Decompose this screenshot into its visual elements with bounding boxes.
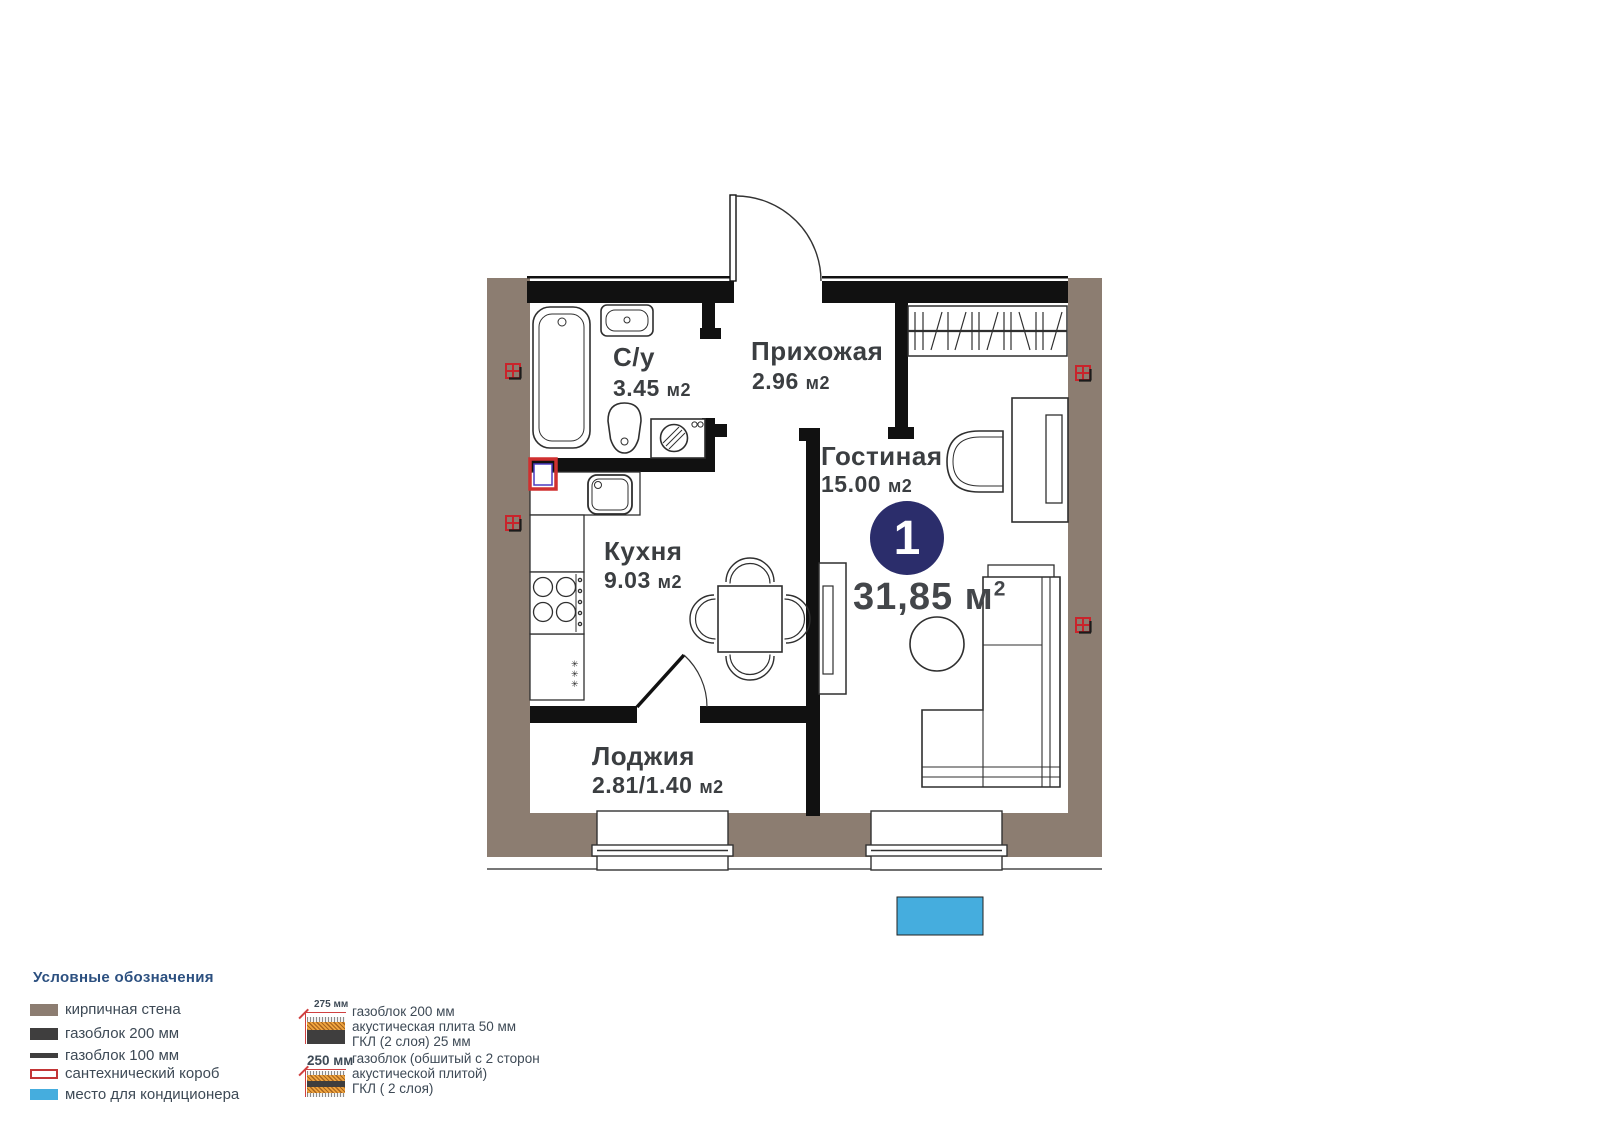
room-area-unit: м2: [667, 380, 691, 400]
tv-stand-icon: [819, 563, 846, 694]
wall-section-line: ГКЛ ( 2 слоя): [352, 1081, 540, 1096]
wall-section-line: газоблок 200 мм: [352, 1004, 516, 1019]
room-area-unit: м2: [888, 476, 912, 496]
room-count-badge: 1: [870, 501, 944, 575]
room-label-hallway: Прихожая: [751, 336, 883, 367]
wardrobe-icon: [908, 306, 1067, 356]
wall-section-swatch-icon: [307, 1071, 345, 1097]
dining-table-icon: [690, 558, 810, 680]
room-area-value: 15.00: [821, 471, 881, 497]
total-area: 31,85 м2: [853, 576, 1006, 619]
brick-swatch-icon: [30, 1004, 58, 1016]
room-label-loggia: Лоджия: [592, 741, 695, 772]
room-area-hallway: 2.96 м2: [752, 368, 830, 395]
room-count-number: 1: [894, 511, 921, 566]
room-label-kitchen: Кухня: [604, 536, 682, 567]
ac-place-marker: [897, 897, 983, 935]
toilet-icon: [608, 403, 641, 453]
total-area-value: 31,85 м: [853, 576, 994, 618]
room-area-value: 9.03: [604, 567, 651, 593]
legend-item-label: сантехнический короб: [65, 1065, 220, 1082]
room-label-bathroom: С/у: [613, 342, 655, 373]
wall-section-dimension: 250 мм: [307, 1053, 353, 1068]
desk-icon: [1012, 398, 1068, 522]
wall-section-line: акустической плитой): [352, 1066, 540, 1081]
total-area-sup: 2: [994, 577, 1007, 600]
room-area-unit: м2: [699, 777, 723, 797]
desk-chair-icon: [947, 431, 1003, 492]
wall-section-line: акустическая плита 50 мм: [352, 1019, 516, 1034]
wall-section-description: газоблок (обшитый с 2 сторон акустическо…: [352, 1051, 540, 1096]
loggia-window-icon: [592, 811, 733, 870]
bathtub-icon: [533, 307, 590, 448]
wall-section-swatch-icon: [307, 1017, 345, 1044]
ac-swatch-icon: [30, 1089, 58, 1100]
legend-title: Условные обозначения: [33, 969, 214, 986]
room-label-living: Гостиная: [821, 441, 943, 472]
floorplan-page: С/у 3.45 м2 Прихожая 2.96 м2 Гостиная 15…: [0, 0, 1600, 1131]
plumbing-box-icon: [530, 459, 556, 489]
room-area-value: 3.45: [613, 375, 660, 401]
floorplan-drawing: [0, 0, 1600, 1131]
washing-machine-icon: [651, 419, 705, 458]
room-area-bathroom: 3.45 м2: [613, 375, 691, 402]
wall-section-line: газоблок (обшитый с 2 сторон: [352, 1051, 540, 1066]
living-window-icon: [866, 811, 1007, 870]
wall-section-dimension: 275 мм: [314, 999, 348, 1010]
room-area-loggia: 2.81/1.40 м2: [592, 772, 724, 799]
legend-item-label: место для кондиционера: [65, 1086, 239, 1103]
kitchen-sink-icon: [588, 475, 632, 514]
plumbing-swatch-icon: [30, 1069, 58, 1079]
fridge-icon: ✳ ✳ ✳: [571, 659, 579, 689]
legend-item-brick: кирпичная стена: [30, 1001, 181, 1018]
room-area-unit: м2: [806, 373, 830, 393]
room-area-kitchen: 9.03 м2: [604, 567, 682, 594]
wall-section-description: газоблок 200 мм акустическая плита 50 мм…: [352, 1004, 516, 1049]
block100-swatch-icon: [30, 1053, 58, 1058]
balcony-door-icon: [637, 655, 707, 707]
legend-item-label: кирпичная стена: [65, 1001, 181, 1018]
room-area-unit: м2: [658, 572, 682, 592]
legend-item-ac: место для кондиционера: [30, 1086, 239, 1103]
room-area-living: 15.00 м2: [821, 471, 912, 498]
legend-item-label: газоблок 200 мм: [65, 1025, 179, 1042]
room-area-value: 2.96: [752, 368, 799, 394]
coffee-table-icon: [910, 617, 964, 671]
entrance-door-icon: [730, 195, 821, 281]
legend-item-label: газоблок 100 мм: [65, 1047, 179, 1064]
wall-section-line: ГКЛ (2 слоя) 25 мм: [352, 1034, 516, 1049]
legend-item-block200: газоблок 200 мм: [30, 1025, 179, 1042]
legend-item-block100: газоблок 100 мм: [30, 1047, 179, 1064]
stove-icon: [530, 572, 584, 634]
block200-swatch-icon: [30, 1028, 58, 1040]
bathroom-sink-icon: [601, 305, 653, 336]
legend-item-plumbing: сантехнический короб: [30, 1065, 220, 1082]
room-area-value: 2.81/1.40: [592, 772, 692, 798]
